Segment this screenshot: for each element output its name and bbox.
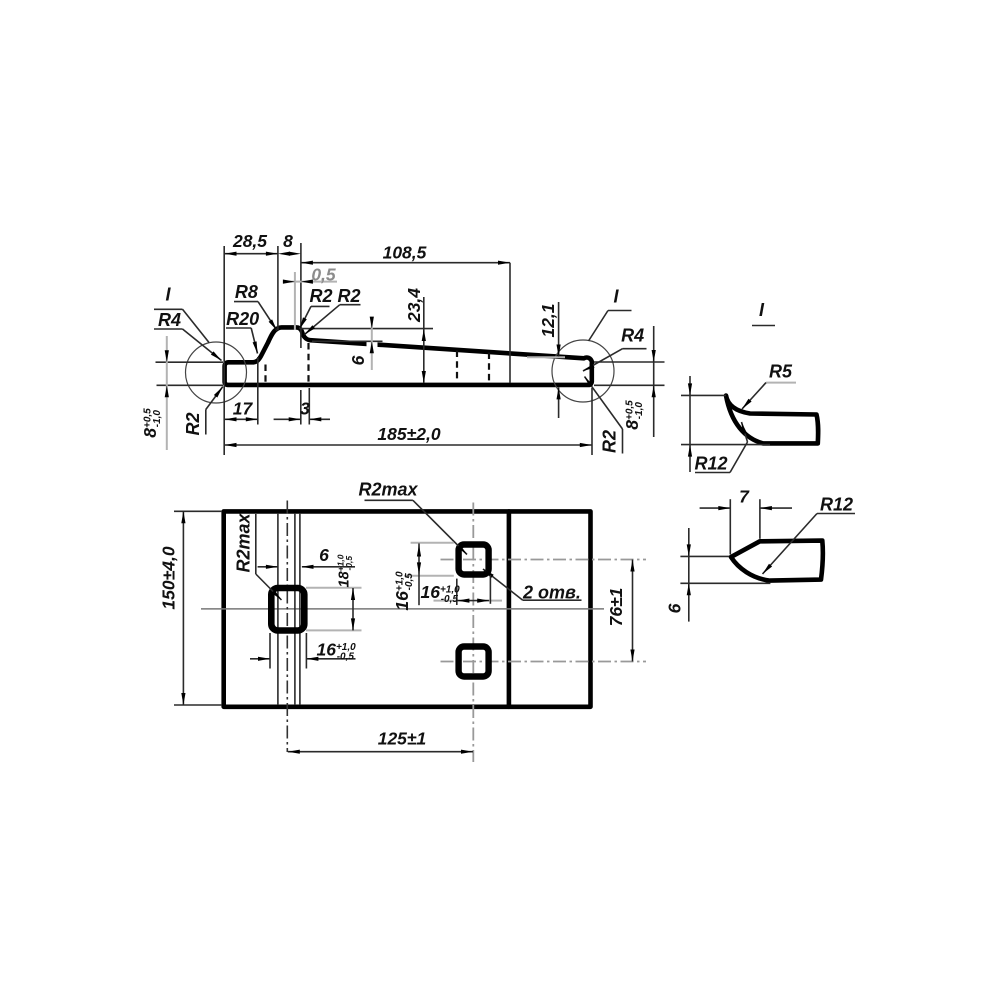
svg-text:16+1,0-0,5: 16+1,0-0,5 [421,582,461,605]
svg-text:R2: R2 [600,430,620,453]
svg-text:6: 6 [665,603,685,613]
svg-text:R20: R20 [226,309,259,329]
svg-text:23,4: 23,4 [404,288,424,323]
svg-text:R2: R2 [183,412,203,435]
svg-text:125±1: 125±1 [378,729,427,749]
svg-text:16+1,0-0,5: 16+1,0-0,5 [317,640,357,663]
svg-text:I: I [759,300,765,320]
svg-text:8+0,5-1,0: 8+0,5-1,0 [140,408,163,438]
svg-text:0,5: 0,5 [311,265,336,285]
svg-text:185±2,0: 185±2,0 [377,424,440,444]
svg-text:18+1,0-0,5: 18+1,0-0,5 [336,554,355,587]
svg-text:I: I [613,287,619,307]
svg-text:6: 6 [319,545,329,565]
svg-text:76±1: 76±1 [606,588,626,627]
svg-text:7: 7 [739,487,750,507]
svg-text:R2max: R2max [234,512,254,572]
svg-text:16+1,0-0,5: 16+1,0-0,5 [392,571,415,611]
svg-text:R2max: R2max [358,480,418,500]
svg-text:I: I [165,285,171,305]
svg-text:150±4,0: 150±4,0 [159,546,179,609]
svg-text:R4: R4 [158,310,181,330]
svg-text:28,5: 28,5 [232,231,267,251]
svg-text:12,1: 12,1 [538,303,558,337]
svg-text:8+0,5-1,0: 8+0,5-1,0 [622,400,645,430]
svg-text:R4: R4 [621,326,644,346]
svg-text:6: 6 [348,355,368,365]
svg-text:R12: R12 [820,495,853,515]
svg-text:R5: R5 [769,362,793,382]
svg-text:3: 3 [300,399,310,419]
svg-text:108,5: 108,5 [383,243,427,263]
svg-text:R12: R12 [694,454,727,474]
svg-text:R8: R8 [235,282,258,302]
svg-text:8: 8 [283,231,293,251]
svg-text:17: 17 [233,399,254,419]
svg-text:R2 R2: R2 R2 [309,286,360,306]
